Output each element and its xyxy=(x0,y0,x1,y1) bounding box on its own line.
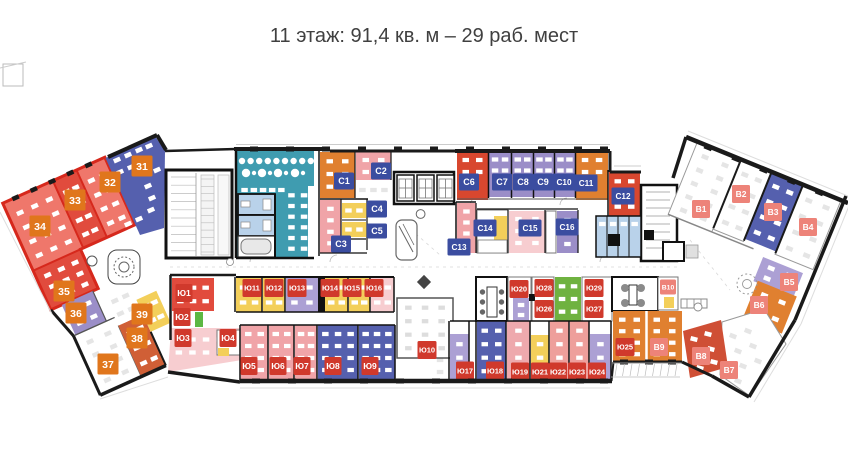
svg-text:В2: В2 xyxy=(736,189,747,199)
svg-text:Ю19: Ю19 xyxy=(512,368,528,377)
svg-text:Ю29: Ю29 xyxy=(586,284,602,293)
svg-text:С9: С9 xyxy=(537,177,549,187)
svg-text:Ю26: Ю26 xyxy=(536,305,552,314)
svg-text:Ю18: Ю18 xyxy=(487,367,503,376)
svg-text:Ю3: Ю3 xyxy=(176,333,190,343)
svg-text:Ю1: Ю1 xyxy=(177,288,191,298)
svg-text:С3: С3 xyxy=(335,239,347,249)
svg-text:С14: С14 xyxy=(477,224,492,233)
svg-text:С7: С7 xyxy=(496,177,508,187)
svg-text:С8: С8 xyxy=(517,177,529,187)
svg-text:Ю24: Ю24 xyxy=(589,368,606,377)
svg-text:С4: С4 xyxy=(371,204,383,214)
svg-text:Ю10: Ю10 xyxy=(419,346,435,355)
svg-text:31: 31 xyxy=(136,161,148,173)
svg-text:С12: С12 xyxy=(615,192,630,201)
svg-text:В7: В7 xyxy=(724,365,735,375)
svg-text:34: 34 xyxy=(34,221,46,233)
svg-text:Ю4: Ю4 xyxy=(221,333,235,343)
svg-text:36: 36 xyxy=(70,308,82,320)
svg-text:Ю16: Ю16 xyxy=(366,284,382,293)
svg-text:Ю23: Ю23 xyxy=(569,368,585,377)
svg-text:Ю9: Ю9 xyxy=(363,361,377,371)
svg-text:Ю21: Ю21 xyxy=(532,368,548,377)
svg-text:Ю2: Ю2 xyxy=(175,312,189,322)
svg-text:Ю12: Ю12 xyxy=(266,284,282,293)
svg-text:В1: В1 xyxy=(696,204,707,214)
svg-text:Ю8: Ю8 xyxy=(326,361,340,371)
svg-text:37: 37 xyxy=(102,359,114,371)
svg-text:38: 38 xyxy=(131,333,143,345)
svg-text:В8: В8 xyxy=(696,351,707,361)
svg-text:Ю15: Ю15 xyxy=(344,284,360,293)
svg-text:С13: С13 xyxy=(451,243,466,252)
svg-text:В4: В4 xyxy=(803,222,814,232)
svg-text:С10: С10 xyxy=(556,178,571,187)
svg-text:В3: В3 xyxy=(768,207,779,217)
svg-text:Ю5: Ю5 xyxy=(242,361,256,371)
svg-text:Ю20: Ю20 xyxy=(511,285,527,294)
svg-text:Ю14: Ю14 xyxy=(322,284,339,293)
svg-text:32: 32 xyxy=(104,177,116,189)
svg-text:С2: С2 xyxy=(375,166,387,176)
svg-text:В6: В6 xyxy=(754,300,765,310)
svg-text:Ю13: Ю13 xyxy=(289,284,305,293)
svg-text:В5: В5 xyxy=(784,277,795,287)
svg-text:39: 39 xyxy=(136,309,148,321)
svg-text:С1: С1 xyxy=(338,176,350,186)
svg-text:В10: В10 xyxy=(662,284,675,291)
svg-text:С6: С6 xyxy=(463,177,475,187)
svg-text:С15: С15 xyxy=(522,224,537,233)
svg-text:С5: С5 xyxy=(371,226,383,236)
svg-text:35: 35 xyxy=(58,286,70,298)
svg-text:Ю17: Ю17 xyxy=(457,367,473,376)
svg-text:С11: С11 xyxy=(579,179,594,188)
svg-text:Ю22: Ю22 xyxy=(550,368,566,377)
svg-text:Ю25: Ю25 xyxy=(617,343,633,352)
svg-text:Ю28: Ю28 xyxy=(536,284,552,293)
svg-text:Ю7: Ю7 xyxy=(295,361,309,371)
svg-text:Ю11: Ю11 xyxy=(244,284,260,293)
svg-text:Ю6: Ю6 xyxy=(271,361,285,371)
svg-text:В9: В9 xyxy=(654,342,665,352)
svg-text:Ю27: Ю27 xyxy=(586,305,602,314)
svg-text:33: 33 xyxy=(69,195,81,207)
svg-text:С16: С16 xyxy=(559,223,574,232)
